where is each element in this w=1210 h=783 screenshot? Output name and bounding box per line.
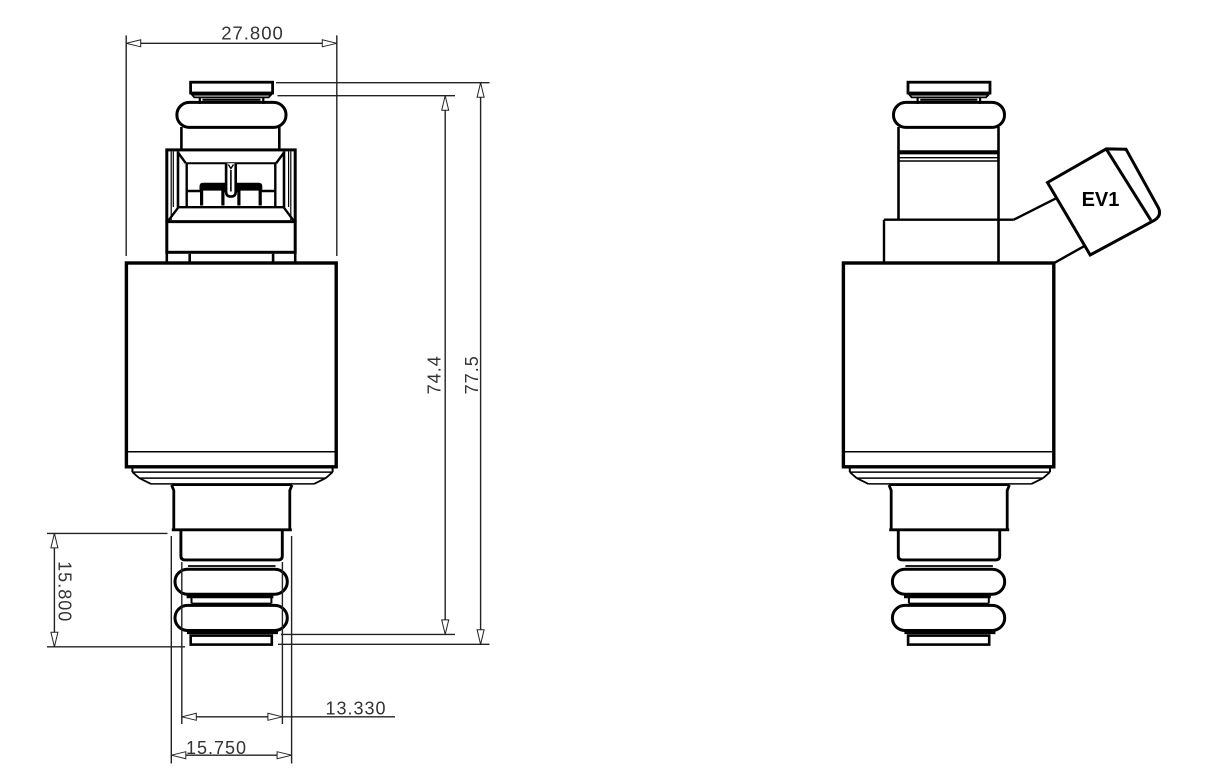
svg-text:13.330: 13.330 (325, 699, 386, 719)
svg-text:74.4: 74.4 (425, 355, 445, 394)
svg-text:15.750: 15.750 (186, 738, 247, 758)
svg-text:27.800: 27.800 (221, 23, 284, 44)
svg-text:77.5: 77.5 (462, 355, 482, 394)
svg-text:15.800: 15.800 (55, 561, 75, 622)
svg-text:EV1: EV1 (1082, 189, 1120, 211)
